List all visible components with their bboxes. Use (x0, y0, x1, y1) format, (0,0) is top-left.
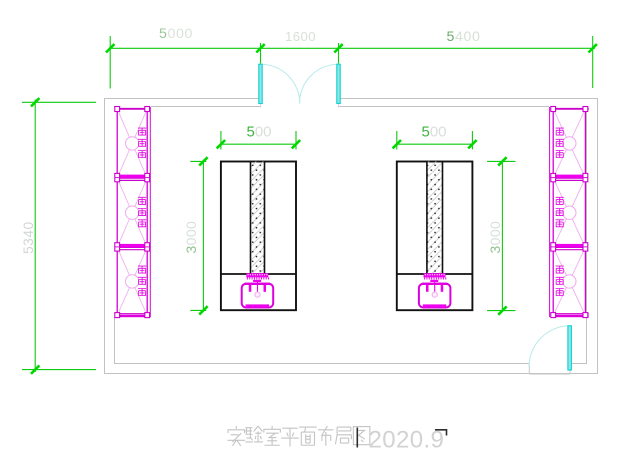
svg-text:5400: 5400 (447, 29, 481, 45)
svg-text:500: 500 (247, 124, 272, 141)
svg-text:3000: 3000 (487, 221, 503, 254)
svg-text:500: 500 (422, 124, 447, 141)
svg-text:5000: 5000 (159, 26, 193, 42)
svg-text:1600: 1600 (285, 29, 316, 44)
svg-text:2020.9: 2020.9 (369, 427, 445, 454)
svg-text:3000: 3000 (183, 221, 199, 254)
svg-text:5340: 5340 (21, 221, 36, 254)
